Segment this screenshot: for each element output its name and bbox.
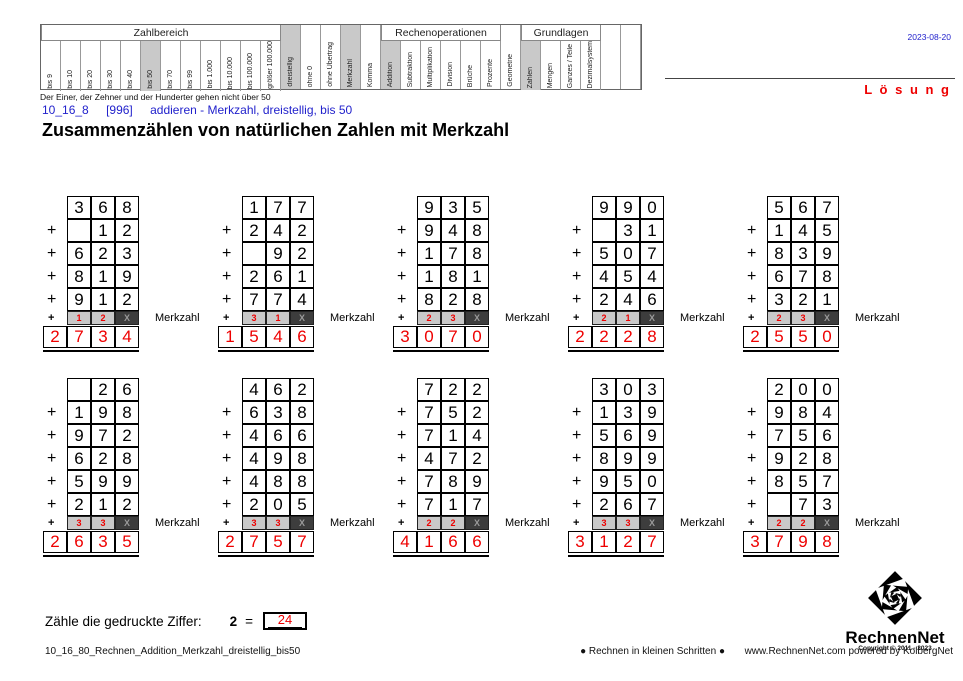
result-digit-cell: 2 bbox=[616, 326, 640, 348]
plus-sign bbox=[568, 196, 592, 219]
digit-cell: 2 bbox=[115, 493, 139, 516]
matrix-group-label: Zahlbereich bbox=[41, 25, 281, 41]
worksheet-ref: [996] bbox=[106, 103, 133, 117]
result-row: 3798 bbox=[743, 531, 900, 553]
plus-sign: + bbox=[743, 288, 767, 311]
result-digit-cell: 5 bbox=[242, 326, 266, 348]
addend-row: +948 bbox=[393, 219, 550, 242]
plus-sign: + bbox=[393, 516, 417, 530]
digit-cell: 8 bbox=[791, 401, 815, 424]
digit-cell: 5 bbox=[815, 219, 839, 242]
digit-cell: 4 bbox=[242, 447, 266, 470]
digit-cell: 7 bbox=[290, 196, 314, 219]
digit-cell: 4 bbox=[592, 265, 616, 288]
digit-cell: 0 bbox=[616, 378, 640, 401]
merkzahl-row: +33XMerkzahl bbox=[218, 516, 375, 530]
addend-row: +912 bbox=[43, 288, 200, 311]
page-title: Zusammenzählen von natürlichen Zahlen mi… bbox=[42, 120, 509, 141]
matrix-cell-label: bis 100.000 bbox=[247, 53, 254, 91]
matrix-cell-label: Geometrie bbox=[507, 54, 514, 89]
digit-cell: 1 bbox=[465, 265, 489, 288]
addend-row: +261 bbox=[218, 265, 375, 288]
result-underline bbox=[218, 555, 314, 557]
matrix-cell: bis 50 bbox=[141, 41, 161, 91]
digit-cell: 5 bbox=[290, 493, 314, 516]
result-digit-cell: 5 bbox=[266, 531, 290, 553]
digit-cell: 2 bbox=[791, 288, 815, 311]
merkzahl-label: Merkzahl bbox=[680, 312, 725, 324]
digit-cell: 8 bbox=[417, 288, 441, 311]
result-digit-cell: 7 bbox=[441, 326, 465, 348]
matrix-cell-label: bis 10 bbox=[67, 70, 74, 91]
addend-row: +242 bbox=[218, 219, 375, 242]
plus-sign bbox=[568, 378, 592, 401]
addend-row: +145 bbox=[743, 219, 900, 242]
merkzahl-row: +33XMerkzahl bbox=[43, 516, 200, 530]
digit-cell: 8 bbox=[465, 242, 489, 265]
plus-sign: + bbox=[743, 401, 767, 424]
result-row: 4166 bbox=[393, 531, 550, 553]
digit-cell: 4 bbox=[616, 288, 640, 311]
plus-sign: + bbox=[743, 242, 767, 265]
plus-sign: + bbox=[393, 242, 417, 265]
topic-matrix: Zahlbereichbis 9bis 10bis 20bis 30bis 40… bbox=[40, 24, 642, 90]
matrix-cell: Mengen bbox=[541, 41, 561, 90]
digit-cell: 2 bbox=[441, 378, 465, 401]
digit-cell: 7 bbox=[417, 424, 441, 447]
plus-sign: + bbox=[43, 470, 67, 493]
matrix-cell-label: Merkzahl bbox=[347, 59, 354, 89]
digit-cell: 7 bbox=[791, 493, 815, 516]
matrix-cell: bis 1.000 bbox=[201, 41, 221, 91]
result-row: 2550 bbox=[743, 326, 900, 348]
addend-row: 990 bbox=[568, 196, 725, 219]
digit-cell: 9 bbox=[465, 470, 489, 493]
addend-row: 368 bbox=[43, 196, 200, 219]
merkzahl-cell: 3 bbox=[242, 311, 266, 325]
matrix-cell-label: Mengen bbox=[547, 63, 554, 90]
digit-cell: 5 bbox=[791, 470, 815, 493]
merkzahl-x-cell: X bbox=[290, 311, 314, 325]
plus-sign: + bbox=[743, 516, 767, 530]
matrix-cell: Brüche bbox=[461, 41, 481, 89]
digit-cell: 1 bbox=[91, 288, 115, 311]
plus-sign: + bbox=[393, 288, 417, 311]
matrix-group-row: ZahlenMengenGanzes / TeileDezimalsystem bbox=[521, 41, 601, 90]
addend-row: +454 bbox=[568, 265, 725, 288]
digit-cell: 5 bbox=[592, 424, 616, 447]
plus-sign: + bbox=[393, 401, 417, 424]
plus-sign: + bbox=[393, 265, 417, 288]
addition-problem: 935+948+178+181+828+23XMerkzahl3070 bbox=[393, 196, 550, 352]
addend-row: +73 bbox=[743, 493, 900, 516]
merkzahl-cell: 1 bbox=[266, 311, 290, 325]
plus-sign: + bbox=[568, 516, 592, 530]
digit-cell: 2 bbox=[465, 401, 489, 424]
digit-cell: 4 bbox=[815, 401, 839, 424]
result-underline bbox=[568, 555, 664, 557]
matrix-cell: Dezimalsystem bbox=[581, 41, 601, 90]
matrix-cell-label: Brüche bbox=[467, 65, 474, 89]
digit-cell: 3 bbox=[441, 196, 465, 219]
digit-cell: 3 bbox=[640, 378, 664, 401]
digit-cell: 4 bbox=[266, 219, 290, 242]
digit-cell: 4 bbox=[242, 424, 266, 447]
plus-sign: + bbox=[568, 493, 592, 516]
matrix-cell-label: bis 30 bbox=[107, 70, 114, 91]
result-digit-cell: 0 bbox=[465, 326, 489, 348]
matrix-cell: dreistellig bbox=[281, 25, 301, 89]
addend-row: +756 bbox=[743, 424, 900, 447]
result-row: 1546 bbox=[218, 326, 375, 348]
plus-sign: + bbox=[393, 424, 417, 447]
digit-cell: 3 bbox=[767, 288, 791, 311]
matrix-cell: Komma bbox=[361, 25, 381, 89]
addition-problem: 177+242+92+261+774+31XMerkzahl1546 bbox=[218, 196, 375, 352]
result-digit-cell: 1 bbox=[417, 531, 441, 553]
digit-cell: 8 bbox=[815, 447, 839, 470]
digit-cell: 2 bbox=[592, 288, 616, 311]
plus-sign: + bbox=[43, 242, 67, 265]
addend-row: +599 bbox=[43, 470, 200, 493]
addend-row: 722 bbox=[393, 378, 550, 401]
plus-sign bbox=[743, 378, 767, 401]
addend-row: +984 bbox=[743, 401, 900, 424]
digit-cell: 2 bbox=[290, 378, 314, 401]
digit-cell: 0 bbox=[815, 378, 839, 401]
digit-cell: 5 bbox=[441, 401, 465, 424]
digit-cell bbox=[67, 219, 91, 242]
plus-sign: + bbox=[218, 516, 242, 530]
matrix-cell: bis 70 bbox=[161, 41, 181, 91]
result-underline bbox=[568, 350, 664, 352]
plus-sign: + bbox=[218, 219, 242, 242]
matrix-cell-label: bis 70 bbox=[167, 70, 174, 91]
matrix-cell: Division bbox=[441, 41, 461, 89]
addend-row: +678 bbox=[743, 265, 900, 288]
digit-cell: 6 bbox=[290, 424, 314, 447]
addend-row: 462 bbox=[218, 378, 375, 401]
digit-cell: 0 bbox=[616, 242, 640, 265]
plus-sign: + bbox=[743, 424, 767, 447]
worksheet-code-line: 10_16_8 [996] addieren - Merkzahl, dreis… bbox=[42, 103, 352, 117]
digit-cell: 9 bbox=[115, 470, 139, 493]
digit-cell: 6 bbox=[640, 288, 664, 311]
merkzahl-row: +22XMerkzahl bbox=[743, 516, 900, 530]
merkzahl-row: +22XMerkzahl bbox=[393, 516, 550, 530]
merkzahl-label: Merkzahl bbox=[855, 517, 900, 529]
counting-task: Zähle die gedruckte Ziffer: 2 = 24 bbox=[45, 612, 307, 630]
result-digit-cell: 8 bbox=[640, 326, 664, 348]
merkzahl-cell: 1 bbox=[616, 311, 640, 325]
result-digit-cell: 7 bbox=[290, 531, 314, 553]
merkzahl-label: Merkzahl bbox=[855, 312, 900, 324]
digit-cell: 2 bbox=[91, 242, 115, 265]
digit-cell: 9 bbox=[767, 447, 791, 470]
plus-sign: + bbox=[218, 493, 242, 516]
plus-sign: + bbox=[568, 424, 592, 447]
digit-cell: 7 bbox=[441, 447, 465, 470]
result-digit-cell: 3 bbox=[393, 326, 417, 348]
merkzahl-cell: 2 bbox=[441, 516, 465, 530]
addend-row: 935 bbox=[393, 196, 550, 219]
result-digit-cell: 2 bbox=[568, 326, 592, 348]
plus-sign: + bbox=[393, 311, 417, 325]
plus-sign: + bbox=[218, 470, 242, 493]
footer-slogan: ● Rechnen in kleinen Schritten ● bbox=[580, 646, 725, 657]
plus-sign: + bbox=[218, 288, 242, 311]
plus-sign bbox=[393, 378, 417, 401]
date: 2023-08-20 bbox=[908, 32, 951, 42]
plus-sign: + bbox=[568, 265, 592, 288]
result-digit-cell: 6 bbox=[465, 531, 489, 553]
digit-cell: 2 bbox=[91, 378, 115, 401]
matrix-group: Zahlbereichbis 9bis 10bis 20bis 30bis 40… bbox=[41, 25, 281, 89]
digit-cell: 6 bbox=[616, 493, 640, 516]
digit-cell: 9 bbox=[592, 196, 616, 219]
merkzahl-label: Merkzahl bbox=[330, 517, 375, 529]
solution-label: L ö s u n g bbox=[864, 82, 951, 97]
matrix-group-label: Grundlagen bbox=[521, 25, 601, 41]
digit-cell: 1 bbox=[91, 493, 115, 516]
plus-sign: + bbox=[743, 311, 767, 325]
addend-row: +205 bbox=[218, 493, 375, 516]
task-digit: 2 bbox=[230, 614, 238, 629]
matrix-cell-label: ohne 0 bbox=[307, 66, 314, 89]
rechnennet-logo: RechnenNet Copyright © 2011 - 2023 bbox=[835, 570, 955, 653]
matrix-cell: Addition bbox=[381, 41, 401, 89]
result-row: 3070 bbox=[393, 326, 550, 348]
plus-sign bbox=[218, 196, 242, 219]
matrix-cell: bis 20 bbox=[81, 41, 101, 91]
digit-cell: 9 bbox=[616, 447, 640, 470]
addend-row: +623 bbox=[43, 242, 200, 265]
matrix-cell-label: bis 9 bbox=[47, 74, 54, 91]
matrix-cell-label: bis 10.000 bbox=[227, 57, 234, 91]
result-digit-cell: 2 bbox=[43, 531, 67, 553]
result-digit-cell: 4 bbox=[115, 326, 139, 348]
plus-sign: + bbox=[743, 219, 767, 242]
digit-cell: 3 bbox=[815, 493, 839, 516]
addition-problem: 303+139+569+899+950+267+33XMerkzahl3127 bbox=[568, 378, 725, 557]
merkzahl-cell: 2 bbox=[592, 311, 616, 325]
result-row: 2734 bbox=[43, 326, 200, 348]
matrix-cell: Prozente bbox=[481, 41, 501, 89]
digit-cell: 4 bbox=[791, 219, 815, 242]
matrix-cell: bis 40 bbox=[121, 41, 141, 91]
addend-row: +774 bbox=[218, 288, 375, 311]
digit-cell: 6 bbox=[266, 424, 290, 447]
digit-cell: 1 bbox=[290, 265, 314, 288]
result-underline bbox=[43, 555, 139, 557]
result-underline bbox=[743, 350, 839, 352]
digit-cell: 5 bbox=[465, 196, 489, 219]
digit-cell: 1 bbox=[640, 219, 664, 242]
digit-cell: 7 bbox=[91, 424, 115, 447]
task-text: Zähle die gedruckte Ziffer: bbox=[45, 614, 202, 629]
matrix-cell: bis 100.000 bbox=[241, 41, 261, 91]
merkzahl-cell: 1 bbox=[67, 311, 91, 325]
result-digit-cell: 2 bbox=[218, 531, 242, 553]
result-digit-cell: 2 bbox=[592, 326, 616, 348]
digit-cell bbox=[592, 219, 616, 242]
matrix-group-row: AdditionSubtraktionMultiplikationDivisio… bbox=[381, 41, 501, 89]
answer-box: 24 bbox=[263, 612, 307, 630]
plus-sign: + bbox=[218, 447, 242, 470]
matrix-cell bbox=[621, 25, 641, 89]
digit-cell: 4 bbox=[441, 219, 465, 242]
digit-cell: 9 bbox=[592, 470, 616, 493]
addend-row: 303 bbox=[568, 378, 725, 401]
matrix-cell: ohne 0 bbox=[301, 25, 321, 89]
digit-cell: 4 bbox=[640, 265, 664, 288]
result-underline bbox=[743, 555, 839, 557]
digit-cell: 4 bbox=[242, 378, 266, 401]
result-row: 2635 bbox=[43, 531, 200, 553]
addend-row: +198 bbox=[43, 401, 200, 424]
merkzahl-x-cell: X bbox=[115, 516, 139, 530]
result-digit-cell: 1 bbox=[218, 326, 242, 348]
digit-cell: 1 bbox=[815, 288, 839, 311]
digit-cell: 2 bbox=[91, 447, 115, 470]
result-underline bbox=[393, 555, 489, 557]
merkzahl-row: +23XMerkzahl bbox=[393, 311, 550, 325]
addend-row: 26 bbox=[43, 378, 200, 401]
matrix-cell: Subtraktion bbox=[401, 41, 421, 89]
digit-cell: 0 bbox=[640, 196, 664, 219]
logo-spiral-icon bbox=[867, 570, 923, 626]
addition-problem: 462+638+466+498+488+205+33XMerkzahl2757 bbox=[218, 378, 375, 557]
digit-cell: 8 bbox=[290, 447, 314, 470]
addend-row: +789 bbox=[393, 470, 550, 493]
digit-cell: 7 bbox=[266, 196, 290, 219]
digit-cell: 1 bbox=[441, 493, 465, 516]
digit-cell: 7 bbox=[815, 196, 839, 219]
merkzahl-x-cell: X bbox=[465, 311, 489, 325]
merkzahl-cell: 3 bbox=[91, 516, 115, 530]
digit-cell: 3 bbox=[115, 242, 139, 265]
plus-sign: + bbox=[743, 493, 767, 516]
plus-sign: + bbox=[568, 288, 592, 311]
digit-cell: 7 bbox=[767, 424, 791, 447]
merkzahl-row: +31XMerkzahl bbox=[218, 311, 375, 325]
digit-cell: 9 bbox=[417, 219, 441, 242]
merkzahl-x-cell: X bbox=[815, 516, 839, 530]
plus-sign: + bbox=[568, 401, 592, 424]
digit-cell: 5 bbox=[791, 424, 815, 447]
matrix-group-row: bis 9bis 10bis 20bis 30bis 40bis 50bis 7… bbox=[41, 41, 281, 91]
matrix-caption: Der Einer, der Zehner und der Hunderter … bbox=[40, 92, 271, 102]
merkzahl-cell: 3 bbox=[791, 311, 815, 325]
addition-problem: 722+752+714+472+789+717+22XMerkzahl4166 bbox=[393, 378, 550, 557]
digit-cell: 3 bbox=[791, 242, 815, 265]
merkzahl-cell: 3 bbox=[266, 516, 290, 530]
digit-cell: 8 bbox=[465, 219, 489, 242]
result-digit-cell: 6 bbox=[67, 531, 91, 553]
matrix-cell: Geometrie bbox=[501, 25, 521, 89]
digit-cell: 2 bbox=[791, 447, 815, 470]
addend-row: +488 bbox=[218, 470, 375, 493]
matrix-cell-label: größer 100.000 bbox=[267, 41, 274, 91]
digit-cell: 4 bbox=[417, 447, 441, 470]
matrix-group: RechenoperationenAdditionSubtraktionMult… bbox=[381, 25, 501, 89]
addend-row: +839 bbox=[743, 242, 900, 265]
merkzahl-cell: 2 bbox=[767, 311, 791, 325]
plus-sign: + bbox=[568, 242, 592, 265]
matrix-cell: bis 10.000 bbox=[221, 41, 241, 91]
answer-count: 24 bbox=[268, 613, 302, 628]
addend-row: +498 bbox=[218, 447, 375, 470]
merkzahl-cell: 2 bbox=[417, 311, 441, 325]
merkzahl-cell: 3 bbox=[441, 311, 465, 325]
digit-cell: 6 bbox=[91, 196, 115, 219]
digit-cell bbox=[67, 378, 91, 401]
matrix-cell: Zahlen bbox=[521, 41, 541, 90]
digit-cell: 8 bbox=[441, 265, 465, 288]
digit-cell bbox=[767, 493, 791, 516]
digit-cell: 7 bbox=[242, 288, 266, 311]
merkzahl-x-cell: X bbox=[640, 311, 664, 325]
merkzahl-x-cell: X bbox=[640, 516, 664, 530]
matrix-cell-label: Komma bbox=[367, 63, 374, 89]
digit-cell: 2 bbox=[115, 288, 139, 311]
matrix-cell-label: Subtraktion bbox=[407, 52, 414, 89]
name-rule-line bbox=[665, 78, 955, 79]
addend-row: +472 bbox=[393, 447, 550, 470]
result-row: 2228 bbox=[568, 326, 725, 348]
digit-cell: 7 bbox=[417, 470, 441, 493]
digit-cell: 8 bbox=[815, 265, 839, 288]
matrix-cell-label: bis 50 bbox=[147, 70, 154, 91]
matrix-cell bbox=[601, 25, 621, 89]
merkzahl-cell: 2 bbox=[91, 311, 115, 325]
digit-cell: 9 bbox=[115, 265, 139, 288]
digit-cell: 4 bbox=[242, 470, 266, 493]
digit-cell: 3 bbox=[616, 219, 640, 242]
matrix-cell: größer 100.000 bbox=[261, 41, 281, 91]
digit-cell: 8 bbox=[115, 196, 139, 219]
merkzahl-label: Merkzahl bbox=[680, 517, 725, 529]
digit-cell: 9 bbox=[91, 470, 115, 493]
matrix-cell-label: bis 99 bbox=[187, 70, 194, 91]
plus-sign: + bbox=[43, 401, 67, 424]
footer-filename: 10_16_80_Rechnen_Addition_Merkzahl_dreis… bbox=[45, 646, 300, 657]
digit-cell: 7 bbox=[640, 242, 664, 265]
addend-row: +569 bbox=[568, 424, 725, 447]
matrix-cell: bis 10 bbox=[61, 41, 81, 91]
plus-sign bbox=[43, 378, 67, 401]
addend-row: +92 bbox=[218, 242, 375, 265]
merkzahl-x-cell: X bbox=[290, 516, 314, 530]
digit-cell: 1 bbox=[242, 196, 266, 219]
digit-cell: 8 bbox=[115, 447, 139, 470]
addition-problem: 26+198+972+628+599+212+33XMerkzahl2635 bbox=[43, 378, 200, 557]
merkzahl-row: +21XMerkzahl bbox=[568, 311, 725, 325]
merkzahl-label: Merkzahl bbox=[330, 312, 375, 324]
digit-cell: 2 bbox=[115, 219, 139, 242]
digit-cell: 9 bbox=[640, 447, 664, 470]
digit-cell: 8 bbox=[767, 242, 791, 265]
matrix-cell: Multiplikation bbox=[421, 41, 441, 89]
plus-sign: + bbox=[218, 424, 242, 447]
result-digit-cell: 1 bbox=[592, 531, 616, 553]
digit-cell: 1 bbox=[417, 265, 441, 288]
addend-row: +628 bbox=[43, 447, 200, 470]
plus-sign: + bbox=[43, 288, 67, 311]
equals-sign: = bbox=[245, 614, 253, 629]
digit-cell: 5 bbox=[616, 470, 640, 493]
merkzahl-row: +23XMerkzahl bbox=[743, 311, 900, 325]
